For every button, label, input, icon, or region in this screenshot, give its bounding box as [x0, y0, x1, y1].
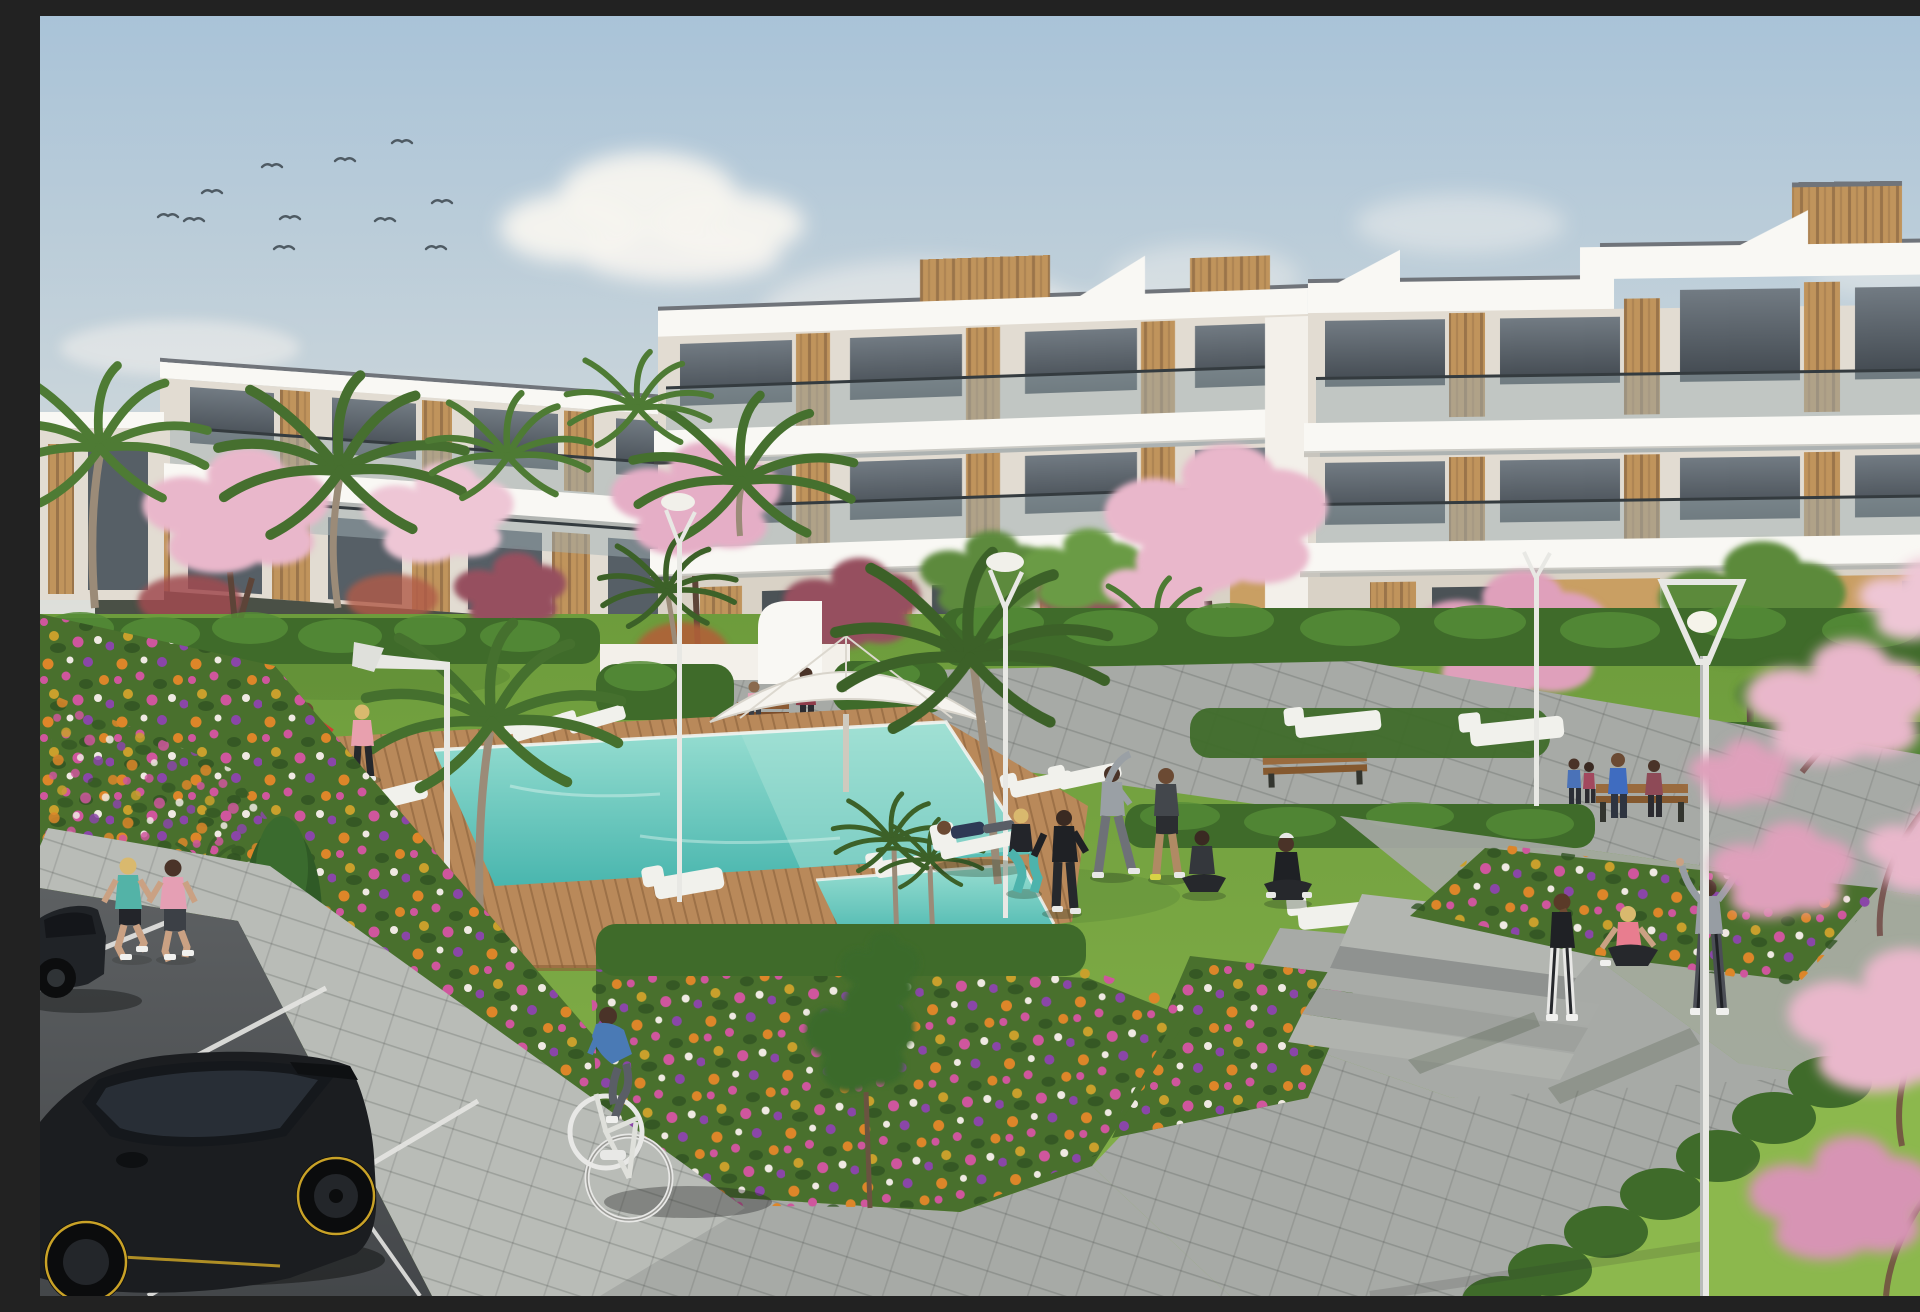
roof-wood-box: [920, 255, 1050, 302]
car-near: [40, 1052, 385, 1296]
roof-wood-box: [1190, 255, 1270, 292]
curved-stair-structure: [758, 601, 822, 684]
scene-canvas: [40, 16, 1920, 1296]
roof-wood-box: [1792, 186, 1902, 245]
architectural-render: [40, 16, 1920, 1296]
person-walking-man: [1567, 759, 1581, 805]
